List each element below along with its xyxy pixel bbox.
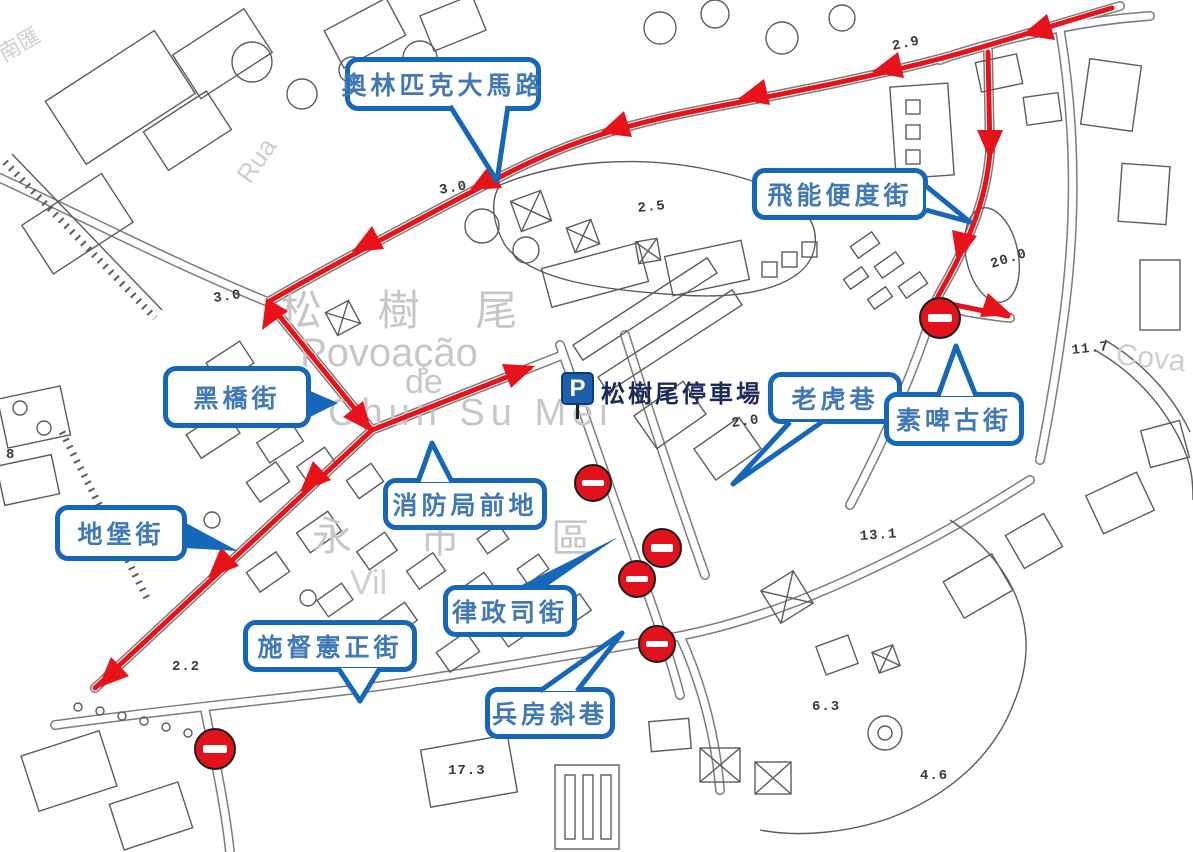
parking-sign-post	[576, 405, 579, 419]
callout-tail	[733, 422, 822, 484]
no-entry-icon	[574, 464, 612, 502]
no-entry-bar	[626, 576, 647, 583]
callout-tail	[184, 522, 238, 551]
parking-icon: P	[561, 372, 594, 405]
parking-label: 松樹尾停車場	[601, 374, 763, 409]
callout-tail	[514, 537, 618, 589]
map-canvas: 松 樹 尾 Povoação de Chun Su Mei Rua Cova 永…	[0, 0, 1193, 852]
no-entry-icon	[642, 528, 682, 568]
no-entry-icon	[618, 560, 656, 598]
callout-tail	[338, 668, 380, 701]
callout-tail	[540, 633, 622, 691]
no-entry-bar	[928, 314, 952, 322]
callout-tail	[450, 106, 508, 181]
no-entry-bar	[651, 544, 673, 551]
no-entry-icon	[638, 625, 676, 663]
no-entry-icon	[919, 297, 961, 339]
callout-tail	[418, 443, 452, 482]
callout-tails	[0, 0, 1193, 852]
no-entry-bar	[646, 641, 667, 648]
no-entry-bar	[582, 480, 603, 487]
parking-marker: P 松樹尾停車場	[561, 372, 763, 409]
callout-tail	[926, 186, 970, 222]
callout-tail	[308, 390, 338, 418]
no-entry-bar	[203, 745, 227, 753]
no-entry-icon	[194, 728, 236, 770]
callout-tail	[938, 346, 976, 396]
